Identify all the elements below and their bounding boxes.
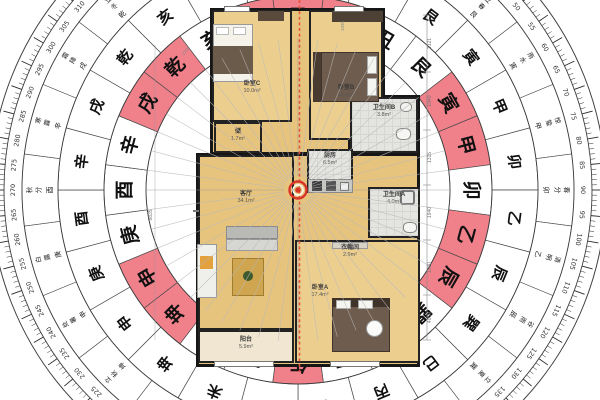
radial-line — [151, 194, 284, 230]
dim-label: 1320 — [427, 262, 433, 273]
radial-line — [166, 197, 286, 266]
dim-label: 1315 — [427, 152, 433, 163]
luopan-floorplan-diagram: 子癸丑艮寅甲卯乙辰巽巳丙午丁未坤申庚酉辛戌乾亥壬子癸丑艮寅甲卯乙辰巽巳丙午丁未坤… — [0, 0, 600, 400]
radial-line — [300, 204, 318, 341]
radial-line — [278, 39, 296, 176]
dim-label: 4050 — [427, 312, 433, 323]
radial-line — [302, 43, 338, 176]
radial-line — [307, 201, 391, 310]
dim-label: 3705 — [181, 45, 192, 56]
radial-line — [312, 151, 445, 187]
radial-line — [259, 43, 295, 176]
radial-line — [166, 114, 286, 183]
radial-line — [205, 201, 289, 310]
radial-line — [222, 202, 291, 322]
radial-line — [312, 194, 445, 230]
radial-line — [177, 199, 286, 283]
radial-line — [222, 58, 291, 178]
radial-line — [300, 39, 318, 176]
radial-line — [259, 204, 295, 337]
radial-line — [305, 202, 374, 322]
compass-overlay: 312119401315194013204050983519353705 — [0, 0, 600, 400]
radial-line — [147, 192, 284, 210]
radial-line — [177, 97, 286, 181]
dim-label: 1940 — [427, 95, 433, 106]
radial-line — [305, 58, 374, 178]
radial-line — [309, 199, 418, 283]
radial-line — [310, 197, 430, 266]
radial-line — [147, 170, 284, 188]
radial-line — [302, 204, 338, 337]
radial-line — [151, 151, 284, 187]
radial-line — [278, 204, 296, 341]
marker-dot — [295, 187, 301, 193]
radial-line — [307, 69, 391, 178]
dim-label: 9835 — [148, 209, 154, 220]
radial-line — [310, 114, 430, 183]
dim-label: 3121 — [427, 38, 433, 49]
radial-line — [205, 69, 289, 178]
dim-label: 1935 — [340, 20, 345, 31]
radial-line — [309, 97, 418, 181]
radial-line — [312, 170, 449, 188]
dim-label: 1940 — [427, 207, 433, 218]
